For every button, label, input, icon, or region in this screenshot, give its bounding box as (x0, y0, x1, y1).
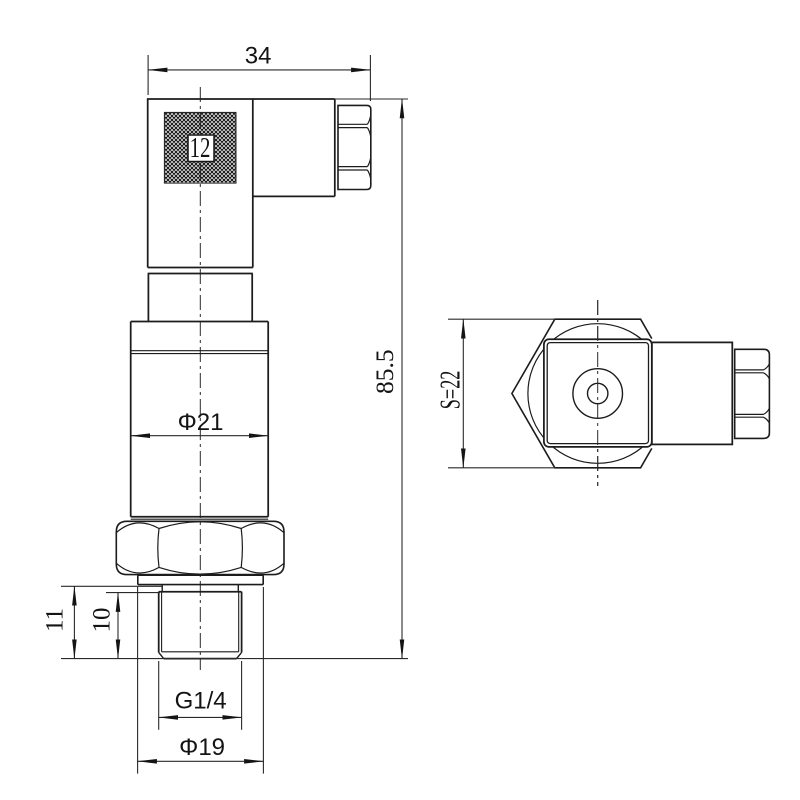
svg-text:34: 34 (245, 43, 272, 70)
svg-text:11: 11 (42, 608, 69, 632)
svg-text:G1/4: G1/4 (175, 687, 227, 714)
svg-text:12: 12 (190, 132, 211, 164)
svg-text:85.5: 85.5 (370, 349, 399, 394)
svg-text:Φ21: Φ21 (178, 409, 224, 436)
svg-text:Φ19: Φ19 (179, 734, 225, 761)
svg-text:10: 10 (89, 608, 116, 633)
svg-text:S=22: S=22 (436, 371, 467, 410)
